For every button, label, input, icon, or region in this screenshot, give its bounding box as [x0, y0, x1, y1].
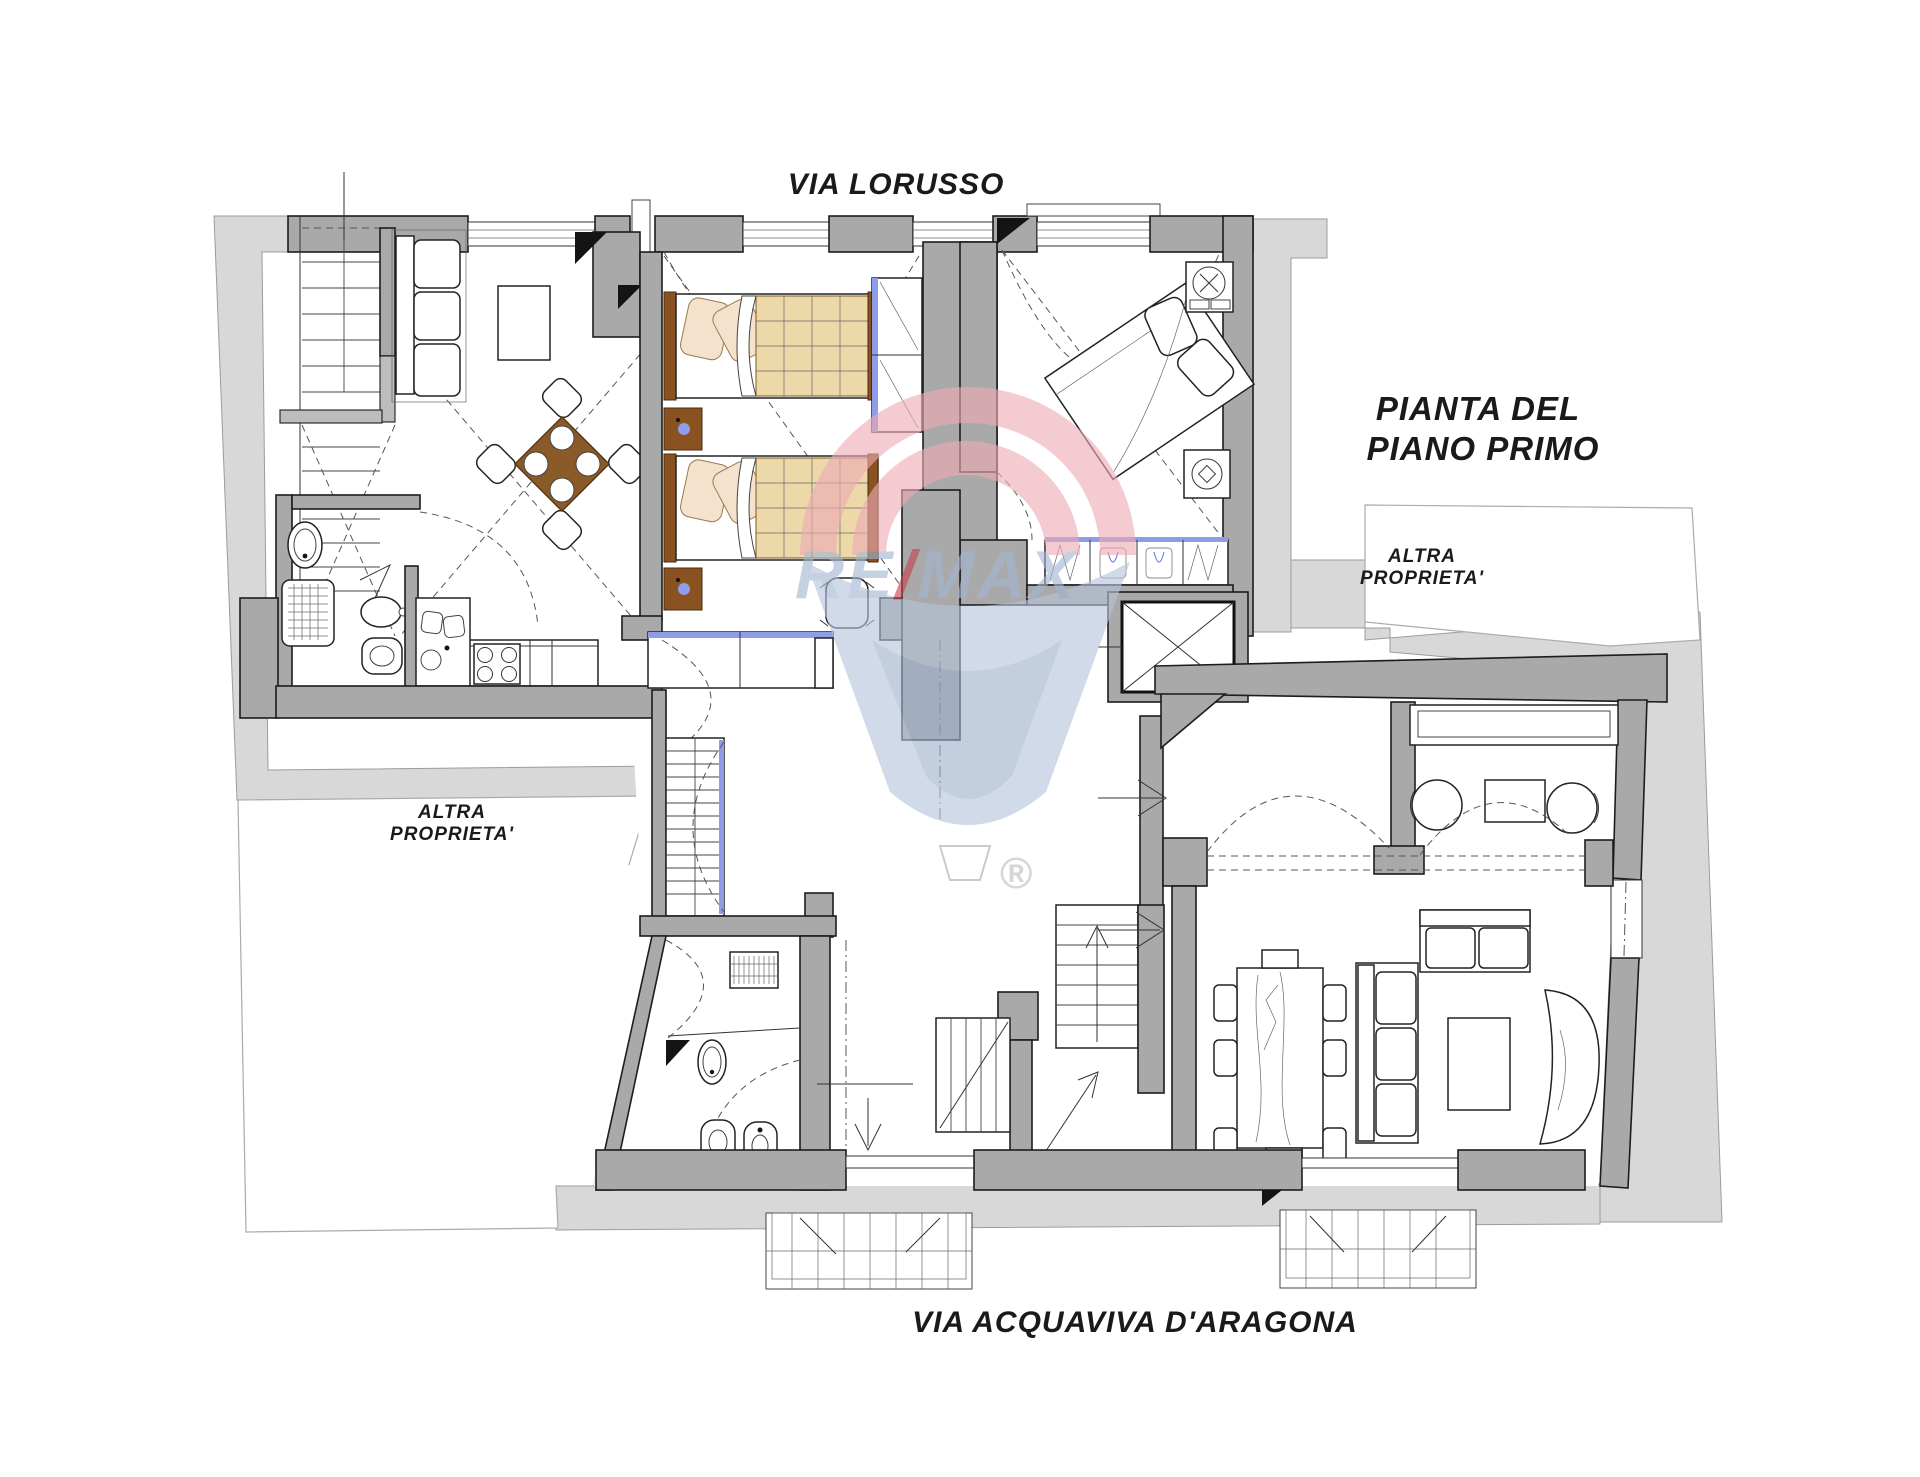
- other-property-left-line1: ALTRA: [417, 802, 486, 823]
- floor-plan-canvas: ® RE/MAX VIA LORUSSO PIANTA DEL PIANO PR…: [0, 0, 1920, 1477]
- plan-title-line1: PIANTA DEL: [1376, 390, 1580, 427]
- wall-niche: [593, 232, 640, 337]
- bidet: [361, 597, 401, 627]
- study-chair: [1412, 780, 1462, 830]
- registered-symbol: ®: [1000, 849, 1032, 898]
- other-property-left-line2: PROPRIETA': [390, 824, 514, 845]
- street-label-bottom: VIA ACQUAVIVA D'ARAGONA: [912, 1306, 1358, 1339]
- sofa-three-seat: [1356, 963, 1418, 1143]
- bed-single-1: [664, 292, 878, 400]
- study-side-table: [1485, 780, 1545, 822]
- window-frame-bedroom2: [1027, 204, 1160, 216]
- plan-title-line2: PIANO PRIMO: [1367, 430, 1600, 467]
- coffee-table: [1448, 1018, 1510, 1110]
- entrance-door: [846, 1156, 974, 1168]
- sofa-cushion: [414, 344, 460, 396]
- loveseat: [1420, 910, 1530, 972]
- balcony-left: [766, 1213, 972, 1289]
- round-stool: [1184, 450, 1230, 498]
- side-table: [498, 286, 550, 360]
- wall-bottom-upper-left: [240, 598, 278, 718]
- fan-unit: [1186, 262, 1233, 312]
- street-label-top: VIA LORUSSO: [788, 168, 1005, 201]
- window-living-right: [1611, 880, 1642, 958]
- balcony-right: [1280, 1210, 1476, 1288]
- other-property-right-line2: PROPRIETA': [1360, 568, 1484, 589]
- window-bedroom2: [1037, 222, 1150, 246]
- floor-plan-page: ® RE/MAX VIA LORUSSO PIANTA DEL PIANO PR…: [0, 0, 1920, 1477]
- sofa-cushion: [414, 292, 460, 340]
- watermark-brand-text: RE/MAX: [795, 537, 1078, 613]
- window-bedroom1: [743, 222, 829, 246]
- other-property-right-line1: ALTRA: [1387, 546, 1456, 567]
- stove: [474, 644, 520, 684]
- balloon-basket: [940, 846, 990, 880]
- desk: [648, 632, 833, 688]
- study-chair: [1547, 783, 1597, 833]
- neighbor-property-left: [238, 796, 650, 1232]
- window-balcony-right: [1302, 1158, 1458, 1168]
- kitchen-sink-unit: [416, 598, 470, 686]
- sofa-cushion: [414, 240, 460, 288]
- sofa-back: [396, 236, 414, 394]
